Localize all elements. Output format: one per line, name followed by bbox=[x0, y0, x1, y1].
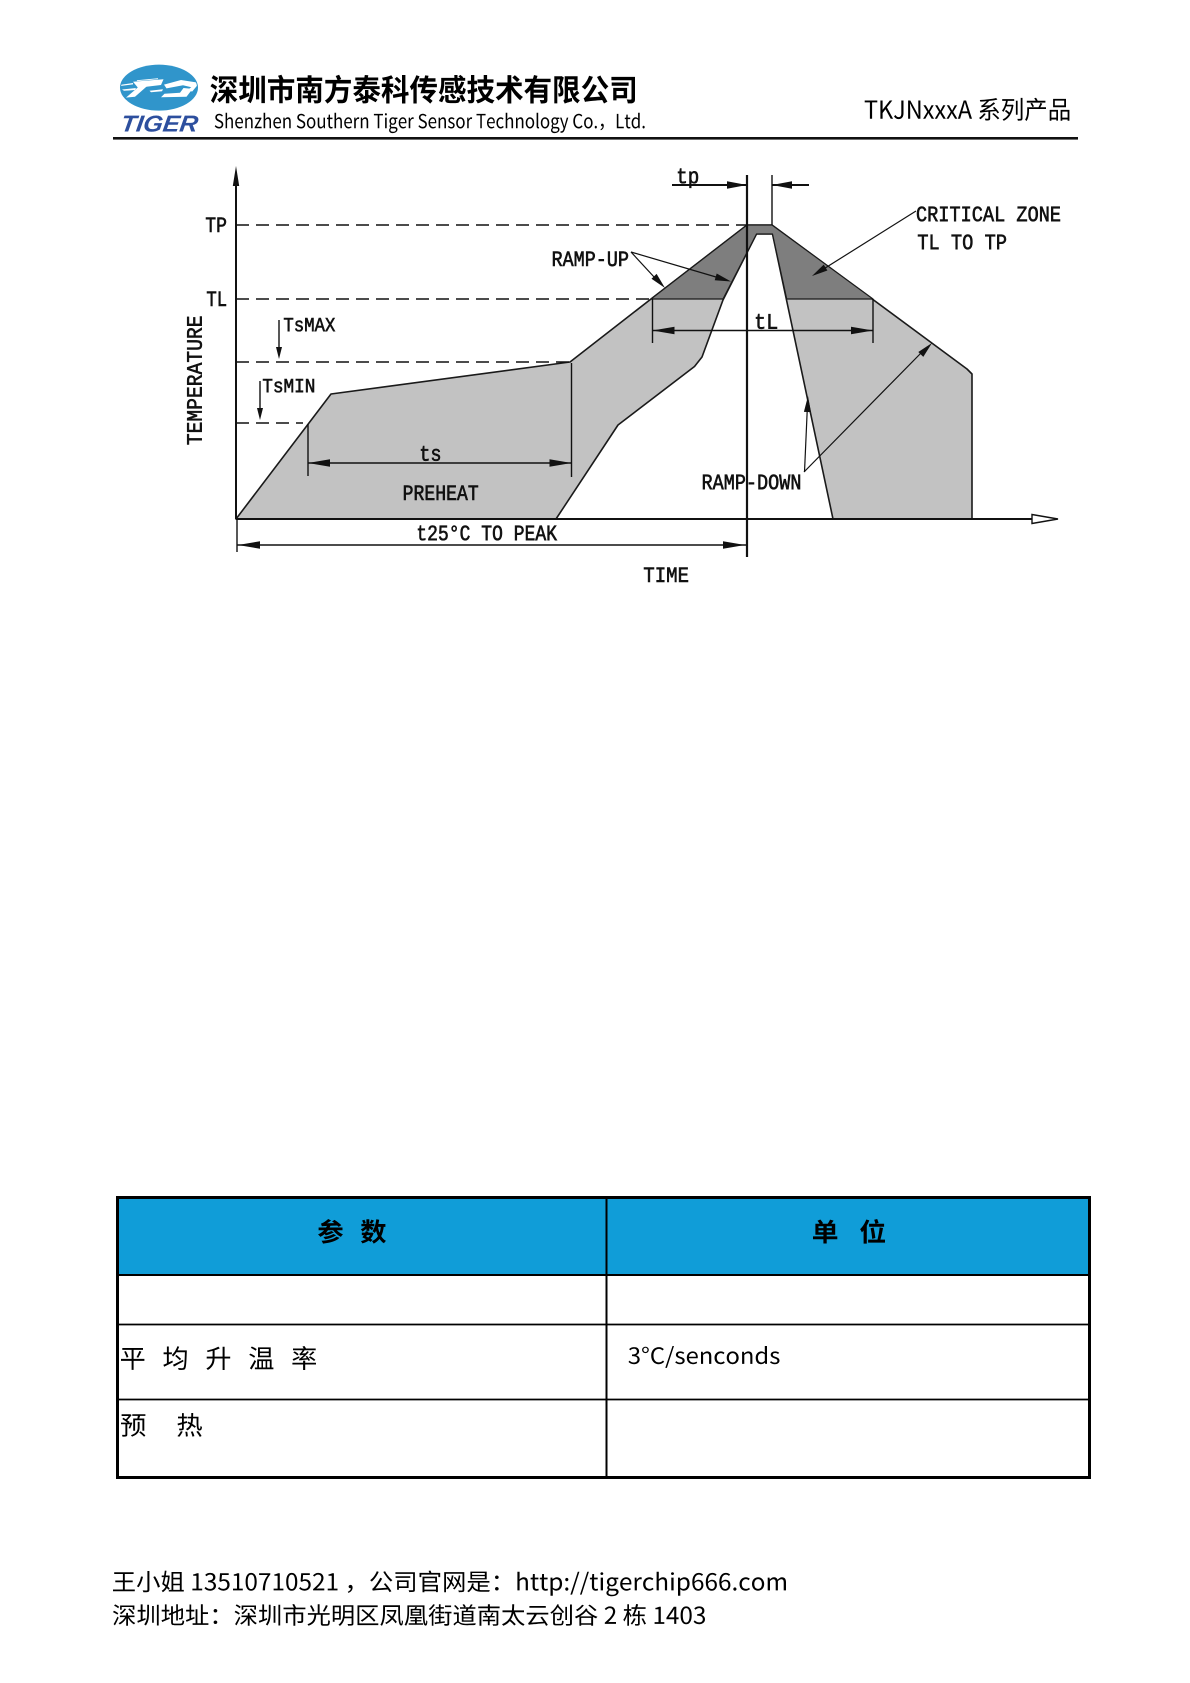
svg-text:TIGER: TIGER bbox=[119, 111, 200, 137]
